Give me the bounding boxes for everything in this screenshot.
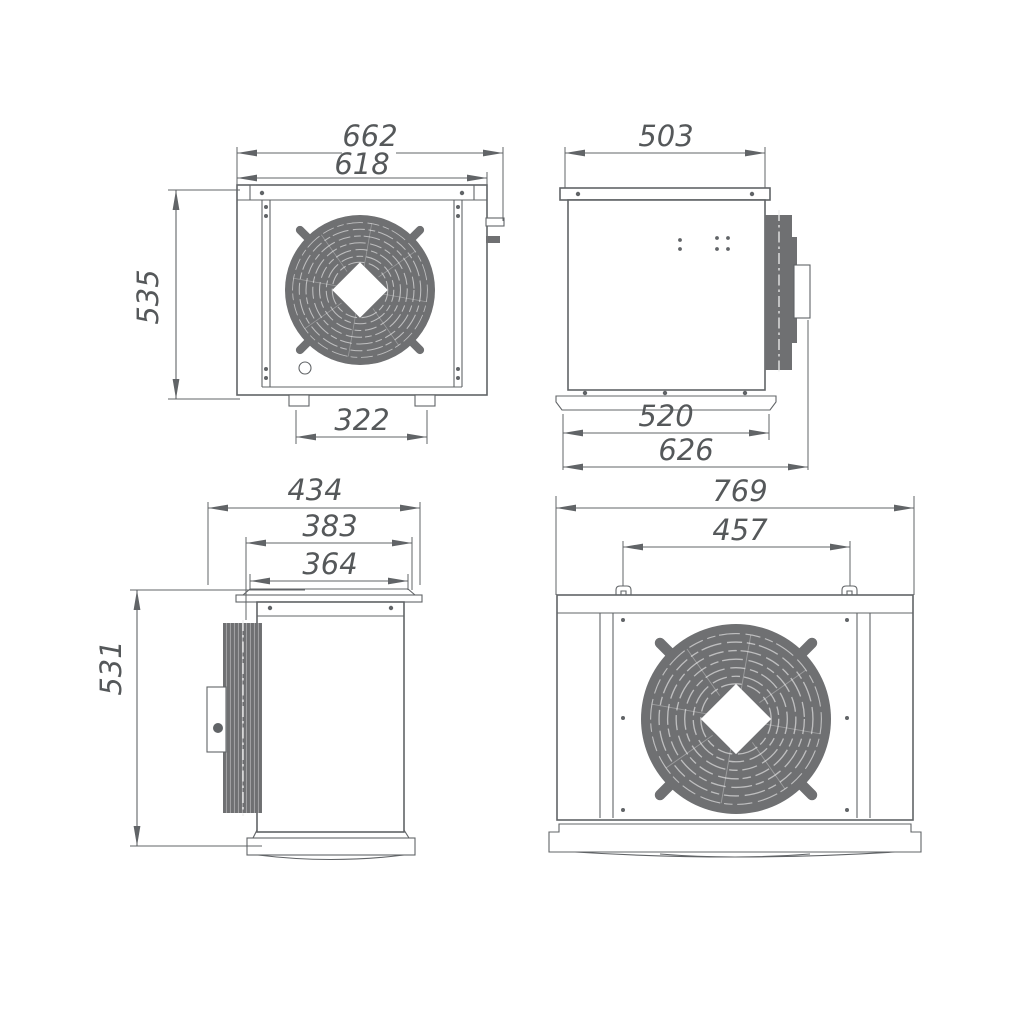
drawing-canvas: 662 618 535 322 [0, 0, 1024, 1024]
pipe-stub-lower [486, 236, 500, 243]
rail-screw [576, 192, 580, 196]
flange-screw [389, 606, 393, 610]
casing-outline [257, 602, 404, 832]
mounting-tab-right [842, 586, 857, 595]
dim-text-side-overall-depth: 626 [658, 433, 713, 467]
dim-text-left-case-depth: 383 [302, 509, 357, 543]
side-panel [568, 200, 765, 390]
motor-housing [207, 687, 226, 752]
cap-screw [460, 191, 464, 195]
pan-bottom-curve [575, 852, 895, 857]
mounting-tab-left [616, 586, 631, 595]
dim-text-front-feet-span: 322 [334, 403, 389, 437]
pipe-stub-upper [486, 218, 504, 226]
dim-text-left-height: 531 [94, 640, 128, 695]
right-side-view: 503 520 626 [556, 119, 810, 470]
top-rail [560, 188, 770, 200]
drain-pan [247, 838, 415, 855]
base-screw [583, 391, 587, 395]
four-view-dimension-drawing: 662 618 535 322 [0, 0, 1024, 1024]
motor-housing [794, 265, 810, 318]
dim-text-side-top-width: 503 [638, 119, 693, 153]
base-screw [663, 391, 667, 395]
front-view: 662 618 535 322 [131, 119, 504, 444]
dim-text-side-base-width: 520 [638, 399, 693, 433]
top-flange [236, 595, 422, 602]
dim-side-top-width [565, 147, 765, 188]
dim-text-front-case-width: 618 [334, 147, 389, 181]
dim-text-left-flange-width: 364 [302, 547, 357, 581]
dim-back-bracket-span [623, 541, 850, 586]
dim-text-left-overall-depth: 434 [287, 473, 342, 507]
dim-text-back-bracket-span: 457 [712, 513, 768, 547]
fan-guard [641, 624, 831, 814]
mounting-foot-right [415, 395, 435, 406]
rail-screw [750, 192, 754, 196]
flange-screw [268, 606, 272, 610]
mounting-foot-left [289, 395, 309, 406]
left-side-view: 434 383 364 531 [94, 473, 422, 860]
back-view: 769 457 [549, 474, 921, 857]
base-pan [549, 824, 921, 852]
motor-shaft [213, 723, 223, 733]
cap-screw [260, 191, 264, 195]
pan-hook-left [253, 830, 257, 838]
dim-text-front-height: 535 [131, 269, 165, 324]
dim-front-height [168, 190, 240, 399]
pan-hook-right [404, 830, 409, 838]
pan-bottom-curve [258, 855, 404, 860]
dim-text-back-overall-width: 769 [712, 474, 767, 508]
fan-guard [285, 215, 435, 365]
base-screw [743, 391, 747, 395]
